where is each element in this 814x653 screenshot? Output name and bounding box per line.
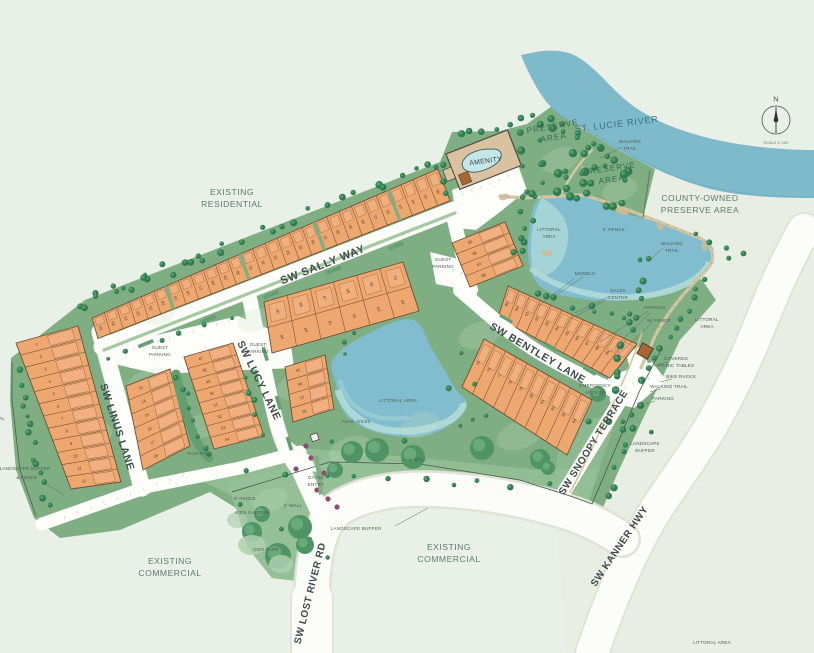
svg-text:SALES: SALES	[610, 288, 626, 293]
svg-text:PARKING: PARKING	[149, 352, 171, 357]
svg-text:& FENCE: & FENCE	[16, 475, 37, 480]
svg-text:WALKING: WALKING	[619, 139, 642, 144]
svg-text:PARKING: PARKING	[652, 396, 674, 401]
svg-text:N: N	[773, 95, 778, 104]
svg-text:W/ FENCE: W/ FENCE	[647, 318, 671, 323]
svg-text:ACCESS: ACCESS	[585, 390, 605, 395]
svg-text:PAW PARK: PAW PARK	[188, 451, 214, 456]
svg-text:GUEST: GUEST	[250, 342, 267, 347]
svg-text:WALKING: WALKING	[661, 241, 684, 246]
svg-text:LITTORAL AREA: LITTORAL AREA	[379, 398, 418, 403]
svg-text:PARKING: PARKING	[247, 349, 269, 354]
svg-text:AREA: AREA	[542, 234, 556, 239]
svg-text:BUFFER: BUFFER	[635, 448, 655, 453]
svg-text:GATED: GATED	[308, 475, 325, 480]
svg-text:6' FENCE: 6' FENCE	[234, 496, 256, 501]
svg-text:SCALE 1"=60': SCALE 1"=60'	[763, 140, 789, 145]
svg-text:COMMERCIAL: COMMERCIAL	[138, 568, 201, 578]
svg-text:KIDS GARDEN: KIDS GARDEN	[235, 510, 269, 515]
svg-text:GUEST: GUEST	[152, 345, 169, 350]
svg-text:6' FENCE: 6' FENCE	[603, 227, 625, 232]
svg-text:DOG PARK: DOG PARK	[253, 547, 279, 552]
svg-text:LANDSCAPE BUFFER: LANDSCAPE BUFFER	[331, 526, 382, 531]
svg-text:4' WALL: 4' WALL	[284, 503, 303, 508]
svg-text:LANDSCAPE BUFFER: LANDSCAPE BUFFER	[0, 466, 51, 471]
svg-text:LITTORAL: LITTORAL	[537, 227, 561, 232]
svg-text:WALKING TRAIL: WALKING TRAIL	[650, 384, 688, 389]
svg-text:ENTRY: ENTRY	[308, 482, 325, 487]
svg-text:PARKING: PARKING	[432, 264, 454, 269]
svg-text:COMMERCIAL: COMMERCIAL	[417, 554, 480, 564]
svg-text:COUNTY-OWNED: COUNTY-OWNED	[661, 193, 738, 203]
svg-text:EXISTING: EXISTING	[427, 542, 471, 552]
svg-text:CENTER: CENTER	[608, 295, 629, 300]
svg-text:AL: AL	[0, 416, 5, 421]
svg-text:EXISTING: EXISTING	[210, 187, 254, 197]
svg-text:GUEST: GUEST	[435, 257, 452, 262]
svg-text:LANDSCAPE: LANDSCAPE	[630, 441, 660, 446]
svg-text:LITTORAL: LITTORAL	[695, 317, 719, 322]
svg-text:EMERGENCY: EMERGENCY	[579, 383, 610, 388]
svg-text:BIKE RACKS: BIKE RACKS	[666, 374, 696, 379]
svg-text:RESIDENTIAL: RESIDENTIAL	[201, 199, 263, 209]
svg-text:TRAIL: TRAIL	[665, 248, 679, 253]
svg-text:PICNIC TABLES: PICNIC TABLES	[658, 363, 695, 368]
svg-text:PRESERVE AREA: PRESERVE AREA	[661, 205, 739, 215]
svg-text:MODELS: MODELS	[575, 271, 596, 276]
svg-text:TRAIL: TRAIL	[623, 146, 637, 151]
svg-text:COVERED: COVERED	[664, 356, 689, 361]
svg-text:EXISTING: EXISTING	[148, 556, 192, 566]
svg-text:AVAIL 4/5/26: AVAIL 4/5/26	[342, 419, 371, 424]
svg-text:AREA: AREA	[700, 324, 714, 329]
svg-text:LITTORAL AREA: LITTORAL AREA	[693, 640, 732, 645]
svg-text:PARKING: PARKING	[644, 305, 666, 310]
